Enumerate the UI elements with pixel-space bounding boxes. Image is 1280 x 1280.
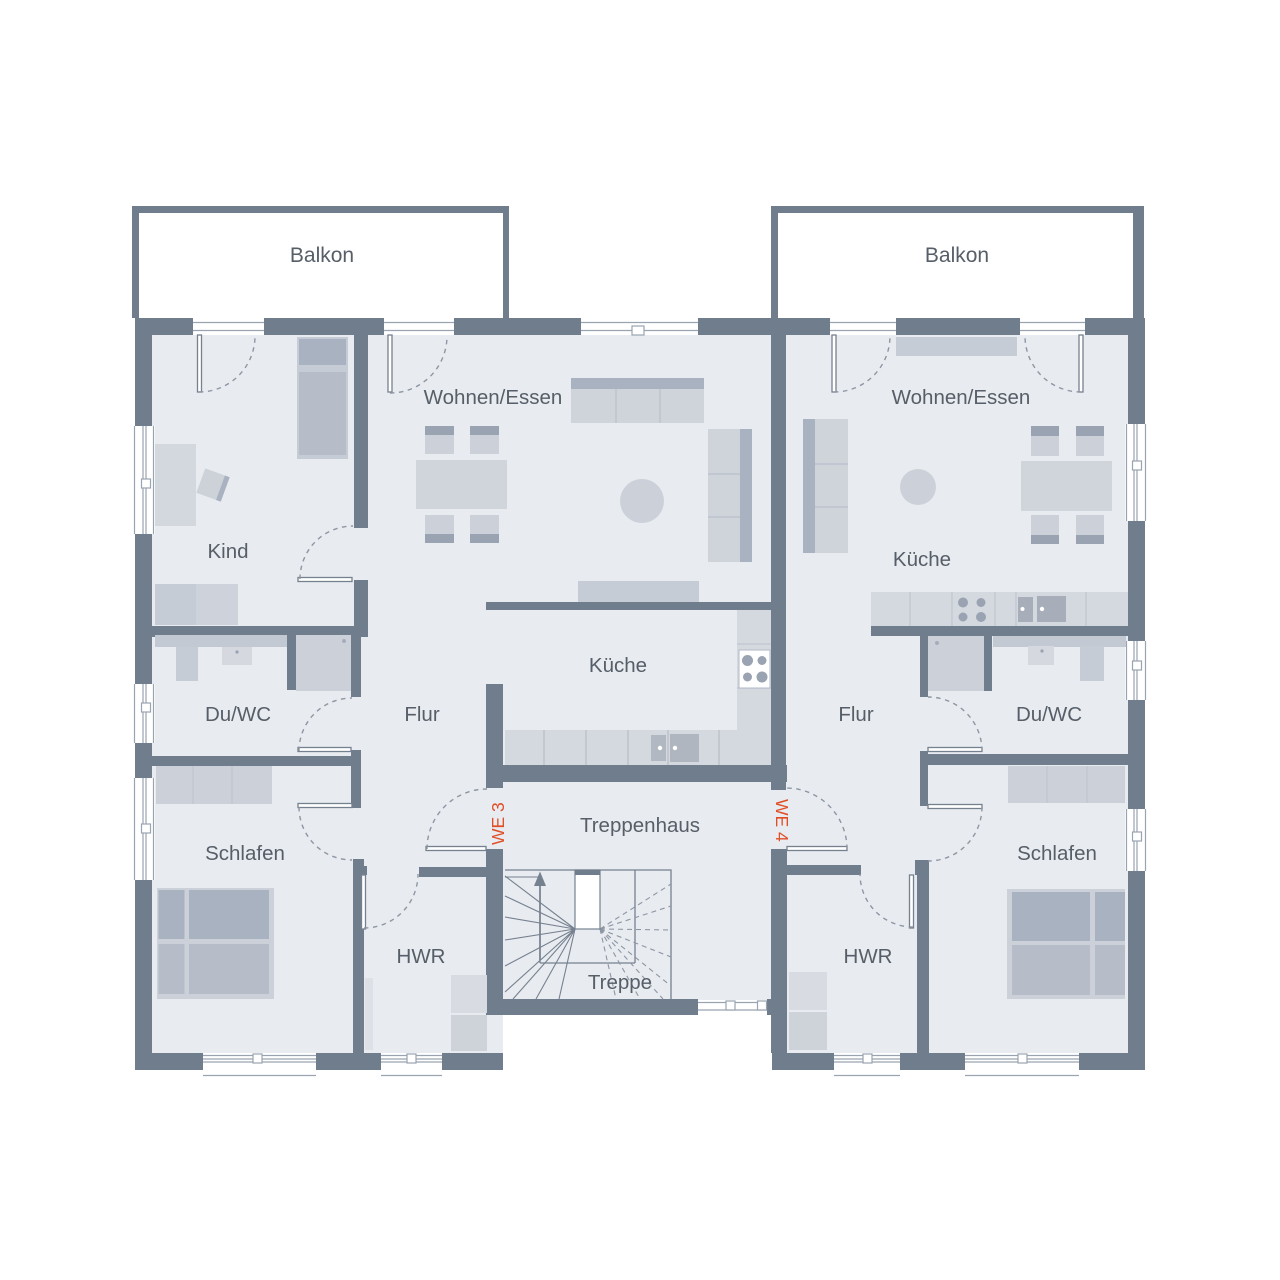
svg-text:HWR: HWR xyxy=(844,945,893,968)
svg-text:WE 4: WE 4 xyxy=(772,799,792,842)
svg-text:Schlafen: Schlafen xyxy=(205,842,285,865)
svg-text:Treppe: Treppe xyxy=(588,971,652,994)
svg-text:Wohnen/Essen: Wohnen/Essen xyxy=(892,386,1031,409)
svg-text:Flur: Flur xyxy=(404,703,439,726)
svg-text:Wohnen/Essen: Wohnen/Essen xyxy=(424,386,563,409)
svg-text:Flur: Flur xyxy=(838,703,873,726)
svg-text:Küche: Küche xyxy=(589,654,647,677)
svg-text:Du/WC: Du/WC xyxy=(1016,703,1082,726)
svg-text:Kind: Kind xyxy=(207,540,248,563)
svg-text:Balkon: Balkon xyxy=(925,244,989,267)
svg-text:Balkon: Balkon xyxy=(290,244,354,267)
svg-text:Du/WC: Du/WC xyxy=(205,703,271,726)
svg-text:Treppenhaus: Treppenhaus xyxy=(580,814,700,837)
svg-text:WE 3: WE 3 xyxy=(488,802,508,845)
svg-text:Küche: Küche xyxy=(893,548,951,571)
svg-text:HWR: HWR xyxy=(397,945,446,968)
svg-text:Schlafen: Schlafen xyxy=(1017,842,1097,865)
